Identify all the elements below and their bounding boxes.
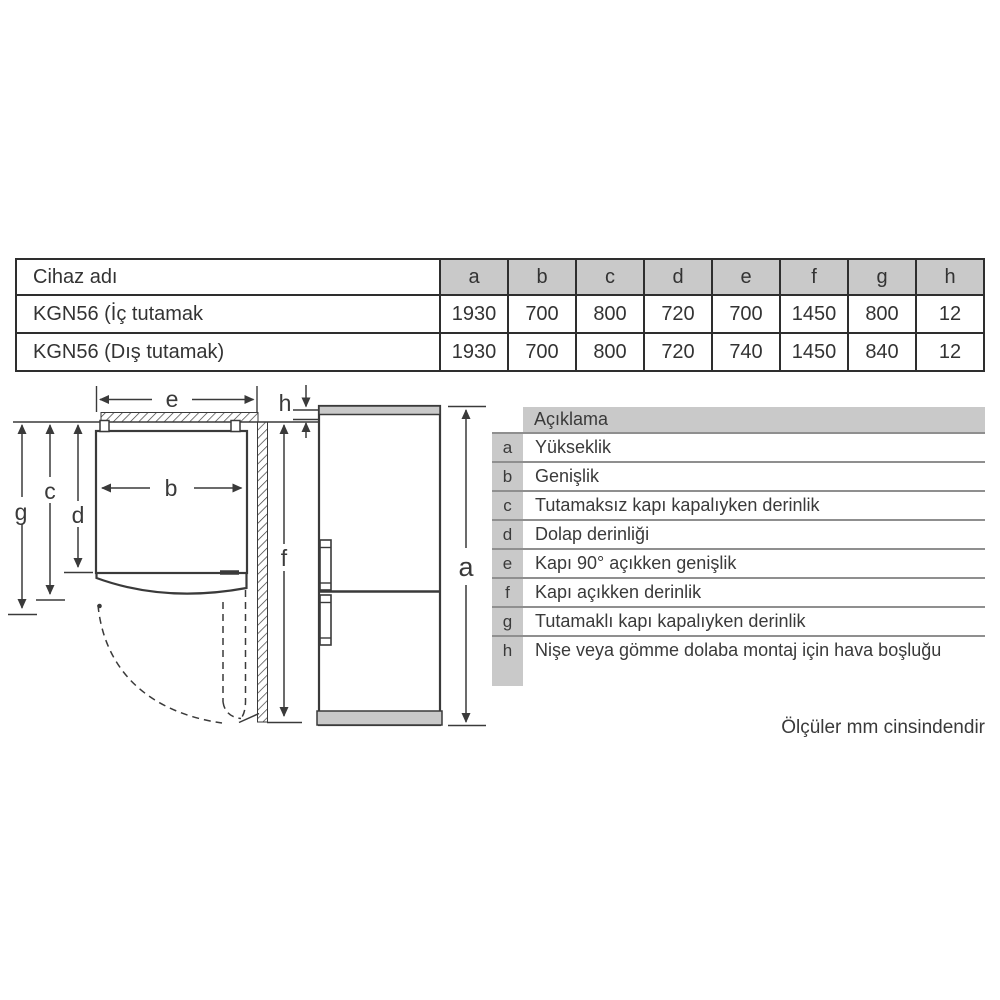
dim-label-f: f [281,545,288,571]
units-note: Ölçüler mm cinsindendir [781,717,985,739]
door-swing-arc [98,605,222,723]
dim-label-h: h [279,390,292,416]
legend-header-spacer [492,407,523,432]
table-row: KGN56 (Dış tutamak) 1930 700 800 720 740… [16,333,984,371]
value-cell: 740 [712,333,780,371]
value-cell: 700 [508,333,576,371]
dim-g: g [8,425,37,615]
value-cell: 1930 [440,295,508,333]
legend-text: Tutamaksız kapı kapalıyken derinlik [523,492,985,519]
value-cell: 800 [848,295,916,333]
value-cell: 800 [576,333,644,371]
legend-text: Genişlik [523,463,985,490]
wall-right [258,422,268,722]
col-header-a: a [440,259,508,295]
dim-label-c: c [44,478,56,504]
door-open-bottom-left [223,702,241,719]
dim-d: d [64,425,93,573]
legend-text: Kapı açıkken derinlik [523,579,985,606]
legend-row: c Tutamaksız kapı kapalıyken derinlik [492,490,985,519]
legend-row: g Tutamaklı kapı kapalıyken derinlik [492,606,985,635]
legend-key: b [492,463,523,490]
legend-key: h [492,637,523,664]
dim-label-d: d [72,502,85,528]
device-name: KGN56 (Dış tutamak) [16,333,440,371]
legend-key: d [492,521,523,548]
legend-text: Nişe veya gömme dolaba montaj için hava … [523,637,985,664]
legend-text: Yükseklik [523,434,985,461]
legend-text: Tutamaklı kapı kapalıyken derinlik [523,608,985,635]
legend-title: Açıklama [523,407,985,432]
device-name-header: Cihaz adı [16,259,440,295]
legend-row: b Genişlik [492,461,985,490]
dim-e: e [97,386,258,412]
legend-key: c [492,492,523,519]
col-header-h: h [916,259,984,295]
cabinet-top-view [96,431,247,573]
top-view-diagram: e b g c [8,385,319,723]
value-cell: 800 [576,295,644,333]
legend-text: Kapı 90° açıkken genişlik [523,550,985,577]
dim-label-a: a [458,552,474,582]
hinge-left [100,421,109,432]
legend-row: a Yükseklik [492,432,985,461]
device-name: KGN56 (İç tutamak [16,295,440,333]
technical-drawing: e b g c [0,378,490,750]
legend-key: a [492,434,523,461]
fridge-top-strip [319,406,440,415]
hinge-right [231,421,240,432]
legend-column-stub [492,664,523,686]
fridge-plinth [317,711,442,725]
legend-row: h Nişe veya gömme dolaba montaj için hav… [492,635,985,664]
legend-row: d Dolap derinliği [492,519,985,548]
col-header-f: f [780,259,848,295]
col-header-b: b [508,259,576,295]
legend-key: g [492,608,523,635]
legend-text: Dolap derinliği [523,521,985,548]
value-cell: 1930 [440,333,508,371]
legend-row: f Kapı açıkken derinlik [492,577,985,606]
door-open-wall-mark [239,714,259,723]
door-closed [97,573,247,594]
value-cell: 12 [916,333,984,371]
value-cell: 720 [644,295,712,333]
table-header-row: Cihaz adı a b c d e f g h [16,259,984,295]
legend-key: f [492,579,523,606]
value-cell: 700 [508,295,576,333]
col-header-g: g [848,259,916,295]
dim-label-g: g [15,499,28,525]
side-view-diagram: a [317,406,486,726]
legend-key: e [492,550,523,577]
col-header-e: e [712,259,780,295]
dim-a: a [448,407,486,726]
legend-header: Açıklama [492,407,985,432]
value-cell: 700 [712,295,780,333]
legend-row: e Kapı 90° açıkken genişlik [492,548,985,577]
door-open-bottom-right [241,698,246,719]
value-cell: 1450 [780,333,848,371]
lower-door-handle [320,595,331,645]
spec-sheet: Cihaz adı a b c d e f g h KGN56 (İç tuta… [0,0,1000,1000]
value-cell: 720 [644,333,712,371]
legend-table: Açıklama a Yükseklik b Genişlik c Tutama… [492,407,985,686]
fridge-body [319,406,440,725]
dim-c: c [36,425,65,600]
value-cell: 12 [916,295,984,333]
value-cell: 1450 [780,295,848,333]
dimension-table: Cihaz adı a b c d e f g h KGN56 (İç tuta… [15,258,985,372]
upper-door-handle [320,540,331,590]
col-header-d: d [644,259,712,295]
value-cell: 840 [848,333,916,371]
col-header-c: c [576,259,644,295]
dim-label-b: b [165,475,178,501]
dim-label-e: e [166,386,179,412]
table-row: KGN56 (İç tutamak 1930 700 800 720 700 1… [16,295,984,333]
dim-f: f [267,425,302,723]
